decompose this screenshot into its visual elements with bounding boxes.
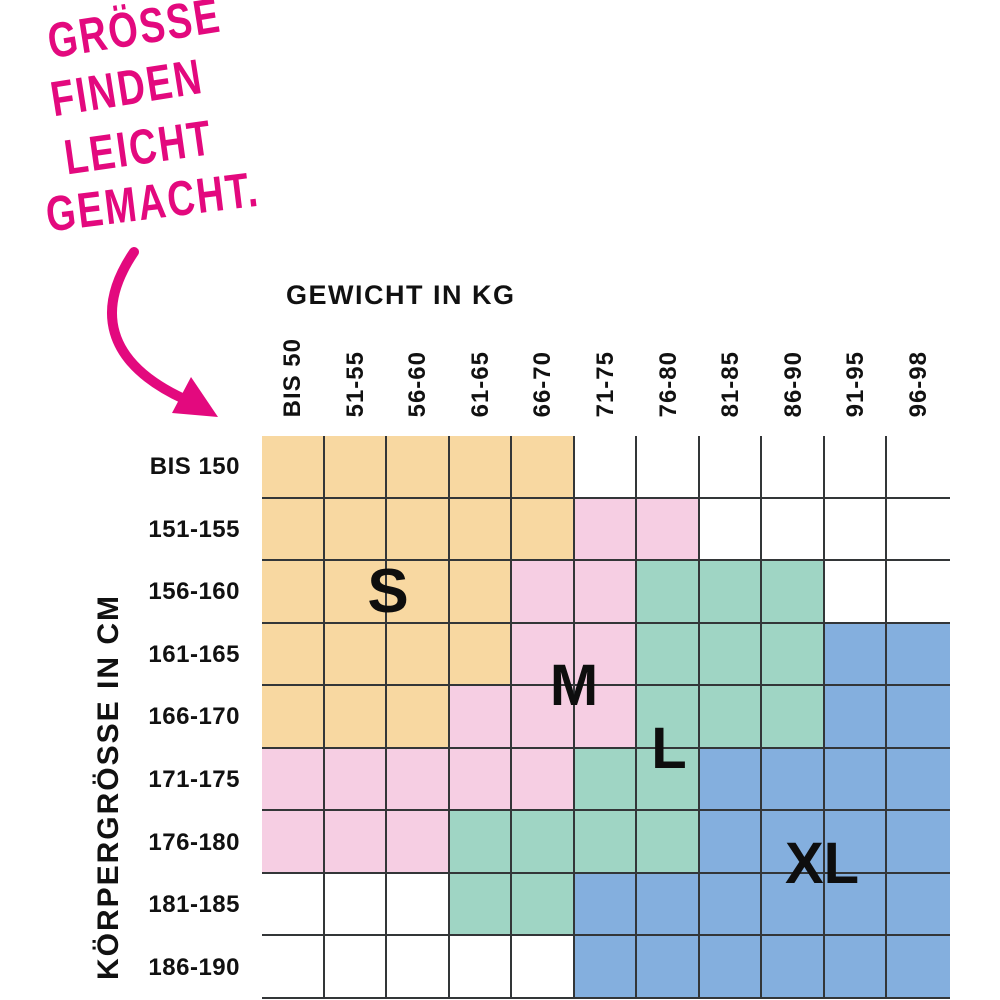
grid-cell <box>512 874 575 937</box>
grid-cell <box>825 686 888 749</box>
grid-cell <box>387 436 450 499</box>
grid-cell <box>450 624 513 687</box>
grid-cell <box>262 749 325 812</box>
grid-cell <box>262 936 325 999</box>
grid-cell <box>325 874 388 937</box>
grid-cell <box>387 686 450 749</box>
weight-label-text: 86-90 <box>780 351 808 417</box>
grid-cell <box>700 499 763 562</box>
grid-cell <box>450 874 513 937</box>
weight-label-11: 96-98 <box>887 300 950 417</box>
size-letter-s: S <box>367 561 408 623</box>
weight-label-8: 81-85 <box>700 300 763 417</box>
grid-cell <box>637 811 700 874</box>
grid-cell <box>637 874 700 937</box>
grid-cell <box>637 936 700 999</box>
grid-cell <box>700 749 763 812</box>
grid-cell <box>262 499 325 562</box>
grid-cell <box>325 499 388 562</box>
grid-cell <box>575 749 638 812</box>
weight-label-7: 76-80 <box>637 300 700 417</box>
grid-cell <box>575 811 638 874</box>
weight-label-text: 96-98 <box>905 351 933 417</box>
grid-cell <box>825 499 888 562</box>
weight-label-2: 51-55 <box>325 300 388 417</box>
grid-cell <box>887 499 950 562</box>
grid-cell <box>887 874 950 937</box>
size-letter-l: L <box>651 720 686 778</box>
grid-cell <box>387 624 450 687</box>
grid-cell <box>262 561 325 624</box>
grid-cell <box>700 561 763 624</box>
weight-label-6: 71-75 <box>575 300 638 417</box>
grid-cell <box>762 499 825 562</box>
grid-cell <box>325 624 388 687</box>
grid-cell <box>825 749 888 812</box>
grid-cell <box>700 811 763 874</box>
grid-cell <box>700 686 763 749</box>
weight-label-5: 66-70 <box>512 300 575 417</box>
grid-cell <box>887 624 950 687</box>
grid-cell <box>450 561 513 624</box>
weight-label-1: BIS 50 <box>262 300 325 417</box>
size-grid <box>262 436 950 999</box>
weight-label-text: 91-95 <box>842 351 870 417</box>
weight-label-text: 51-55 <box>342 351 370 417</box>
grid-cell <box>887 936 950 999</box>
grid-cell <box>575 874 638 937</box>
grid-cell <box>325 749 388 812</box>
weight-label-3: 56-60 <box>387 300 450 417</box>
grid-cell <box>700 874 763 937</box>
grid-cell <box>637 624 700 687</box>
weight-label-9: 86-90 <box>762 300 825 417</box>
grid-cell <box>387 874 450 937</box>
grid-cell <box>512 436 575 499</box>
weight-label-text: BIS 50 <box>279 338 307 417</box>
grid-cell <box>450 811 513 874</box>
grid-cell <box>575 499 638 562</box>
height-axis-title: KÖRPERGRÖSSE IN CM <box>92 594 126 980</box>
grid-cell <box>450 936 513 999</box>
grid-cell <box>450 499 513 562</box>
grid-cell <box>262 686 325 749</box>
size-letter-xl: XL <box>785 835 859 893</box>
grid-cell <box>762 624 825 687</box>
size-chart-page: GRÖSSE FINDEN LEICHT GEMACHT. GEWICHT IN… <box>0 0 1000 1000</box>
grid-cell <box>887 686 950 749</box>
weight-label-text: 61-65 <box>467 351 495 417</box>
grid-cell <box>262 624 325 687</box>
grid-cell <box>262 436 325 499</box>
grid-cell <box>700 436 763 499</box>
grid-cell <box>512 749 575 812</box>
grid-cell <box>512 936 575 999</box>
grid-cell <box>262 874 325 937</box>
grid-cell <box>325 436 388 499</box>
weight-label-text: 81-85 <box>717 351 745 417</box>
grid-cell <box>762 936 825 999</box>
grid-cell <box>512 499 575 562</box>
grid-cell <box>387 811 450 874</box>
grid-cell <box>762 749 825 812</box>
weight-label-10: 91-95 <box>825 300 888 417</box>
grid-cell <box>637 436 700 499</box>
grid-cell <box>387 499 450 562</box>
grid-cell <box>637 499 700 562</box>
height-label-2: 151-155 <box>90 499 240 562</box>
grid-cell <box>450 686 513 749</box>
grid-cell <box>762 436 825 499</box>
grid-cell <box>825 561 888 624</box>
weight-label-text: 56-60 <box>404 351 432 417</box>
grid-cell <box>387 749 450 812</box>
grid-cell <box>325 686 388 749</box>
grid-cell <box>700 624 763 687</box>
grid-cell <box>887 436 950 499</box>
grid-cell <box>825 436 888 499</box>
grid-cell <box>700 936 763 999</box>
grid-cell <box>825 936 888 999</box>
grid-cell <box>262 811 325 874</box>
grid-cell <box>887 561 950 624</box>
grid-cell <box>450 749 513 812</box>
grid-cell <box>325 811 388 874</box>
grid-cell <box>450 436 513 499</box>
grid-cell <box>575 436 638 499</box>
weight-label-4: 61-65 <box>450 300 513 417</box>
grid-cell <box>325 936 388 999</box>
size-letter-m: M <box>550 657 598 715</box>
grid-cell <box>387 936 450 999</box>
grid-cell <box>825 624 888 687</box>
grid-cell <box>887 749 950 812</box>
height-label-1: BIS 150 <box>90 436 240 499</box>
grid-cell <box>762 686 825 749</box>
grid-cell <box>512 561 575 624</box>
weight-label-text: 66-70 <box>529 351 557 417</box>
weight-label-text: 76-80 <box>655 351 683 417</box>
grid-cell <box>637 561 700 624</box>
grid-cell <box>762 561 825 624</box>
grid-cell <box>575 561 638 624</box>
grid-cell <box>887 811 950 874</box>
grid-cell <box>512 811 575 874</box>
grid-cell <box>575 936 638 999</box>
weight-label-text: 71-75 <box>592 351 620 417</box>
